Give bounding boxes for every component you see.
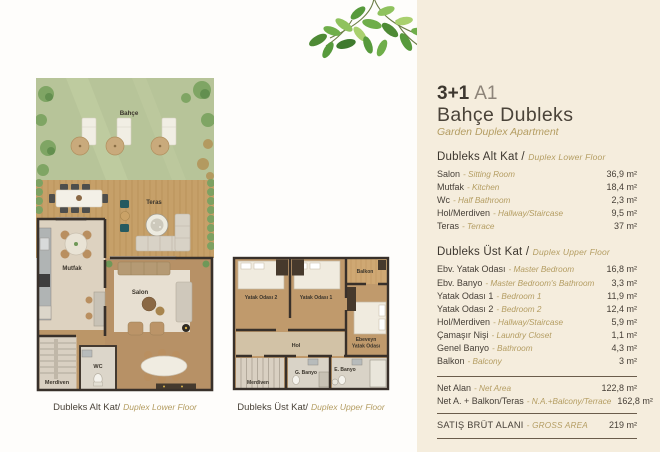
room-area: 37 m² <box>614 220 637 232</box>
room-area: 36,9 m² <box>606 168 637 180</box>
divider <box>437 438 637 439</box>
apartment-name-tr: Bahçe Dubleks <box>437 105 637 126</box>
kitchen-label: Mutfak <box>62 266 82 272</box>
ebath-label: E. Banyo <box>334 367 355 373</box>
room-area: 12,4 m² <box>606 303 637 315</box>
upper-floor-section: Dubleks Üst Kat / Duplex Upper Floor Ebv… <box>437 246 637 368</box>
room-name: Ebv. Banyo <box>437 278 482 288</box>
heading-en: Duplex Lower Floor <box>528 152 605 162</box>
room-name: Wc <box>437 195 450 205</box>
bedroom1-label: Yatak Odası 1 <box>300 295 333 301</box>
area-row: Ebv. Banyo- Master Bedroom's Bathroom3,3… <box>437 277 637 290</box>
room-name-en: - Master Bedroom <box>509 265 575 274</box>
apartment-name-en: Garden Duplex Apartment <box>437 126 637 138</box>
caption-en: Duplex Upper Floor <box>311 402 385 412</box>
room-name: Balkon <box>437 356 465 366</box>
garden-label: Bahçe <box>120 110 139 117</box>
room-name-en: - Terrace <box>462 222 494 231</box>
variant-label: A1 <box>474 83 497 104</box>
hall-label: Hol <box>292 343 301 349</box>
divider <box>437 413 637 414</box>
area-row: Hol/Merdiven- Hallway/Staircase9,5 m² <box>437 207 637 220</box>
room-name-en: - Hallway/Staircase <box>493 209 563 218</box>
lower-floor-plan: Bahçe <box>36 78 214 397</box>
gross-area-row: SATIŞ BRÜT ALANI- GROSS AREA219 m² <box>437 419 637 432</box>
apartment-type-title: 3+1A1 <box>437 84 637 104</box>
room-area: 11,9 m² <box>607 290 637 302</box>
garden-area: Bahçe <box>36 78 214 180</box>
info-panel: 3+1A1 Bahçe Dubleks Garden Duplex Apartm… <box>417 0 660 452</box>
room-area: 9,5 m² <box>611 207 637 219</box>
room-name: Hol/Merdiven <box>437 317 490 327</box>
area-row: Yatak Odası 2- Bedroom 212,4 m² <box>437 303 637 316</box>
room-name: Hol/Merdiven <box>437 208 490 218</box>
room-name-en: - Bedroom 2 <box>496 305 541 314</box>
room-area: 18,4 m² <box>606 181 637 193</box>
total-value: 162,8 m² <box>617 395 653 407</box>
room-area: 16,8 m² <box>606 263 637 275</box>
room-name: Teras <box>437 221 459 231</box>
area-row: Hol/Merdiven- Hallway/Staircase5,9 m² <box>437 316 637 329</box>
room-name-en: - Master Bedroom's Bathroom <box>485 279 594 288</box>
total-label: Net A. + Balkon/Teras <box>437 396 524 406</box>
gross-label: SATIŞ BRÜT ALANI <box>437 420 524 430</box>
area-row: Genel Banyo- Bathroom4,3 m² <box>437 342 637 355</box>
upper-floor-plan: Yatak Odası 2 Yatak Odası 1 Balkon Ebeve… <box>232 252 390 397</box>
upper-plan-caption: Dubleks Üst Kat/Duplex Upper Floor <box>222 402 400 413</box>
room-name-en: - Laundry Closet <box>492 331 552 340</box>
room-area: 5,9 m² <box>611 316 637 328</box>
room-name: Genel Banyo <box>437 343 489 353</box>
net-area-row: Net Alan- Net Area122,8 m² <box>437 382 637 395</box>
area-row: Mutfak- Kitchen18,4 m² <box>437 181 637 194</box>
master-label-1: Ebeveyn <box>356 337 377 343</box>
lower-plan-caption: Dubleks Alt Kat/Duplex Lower Floor <box>36 402 214 413</box>
room-area: 1,1 m² <box>611 329 637 341</box>
bistro-set <box>120 200 130 232</box>
totals-section: Net Alan- Net Area122,8 m² Net A. + Balk… <box>437 376 637 438</box>
type-label: 3+1 <box>437 83 469 104</box>
area-row: Teras- Terrace37 m² <box>437 220 637 233</box>
room-name-en: - Bedroom 1 <box>496 292 541 301</box>
gross-value: 219 m² <box>609 419 637 431</box>
total-label: Net Alan <box>437 383 471 393</box>
gross-label-en: - GROSS AREA <box>527 421 588 430</box>
area-row: Wc- Half Bathroom2,3 m² <box>437 194 637 207</box>
balcony-label: Balkon <box>357 269 374 275</box>
lower-floor-section: Dubleks Alt Kat / Duplex Lower Floor Sal… <box>437 151 637 233</box>
room-name: Salon <box>437 169 460 179</box>
room-name-en: - Kitchen <box>467 183 499 192</box>
area-row: Salon- Sitting Room36,9 m² <box>437 168 637 181</box>
lower-floor-heading: Dubleks Alt Kat / Duplex Lower Floor <box>437 151 637 163</box>
wc-label: WC <box>93 364 102 370</box>
master-label-2: Yatak Odası <box>352 344 381 350</box>
room-name: Yatak Odası 1 <box>437 291 493 301</box>
caption-en: Duplex Lower Floor <box>123 402 197 412</box>
room-area: 3 m² <box>619 355 637 367</box>
divider <box>437 376 637 377</box>
heading-tr: Dubleks Alt Kat / <box>437 151 525 163</box>
upper-floor-heading: Dubleks Üst Kat / Duplex Upper Floor <box>437 246 637 258</box>
total-label-en: - Net Area <box>474 384 511 393</box>
caption-tr: Dubleks Üst Kat/ <box>237 402 308 413</box>
total-label-en: - N.A.+Balcony/Terrace <box>527 397 612 406</box>
area-row: Yatak Odası 1- Bedroom 111,9 m² <box>437 290 637 303</box>
area-row: Çamaşır Nişi- Laundry Closet1,1 m² <box>437 329 637 342</box>
upper-stairs-label: Merdiven <box>247 380 269 386</box>
gbath-label: G. Banyo <box>295 370 317 376</box>
terrace-label: Teras <box>146 200 162 206</box>
room-name: Ebv. Yatak Odası <box>437 264 506 274</box>
room-name-en: - Half Bathroom <box>453 196 510 205</box>
stairs-label: Merdiven <box>45 380 70 386</box>
area-row: Balkon- Balcony3 m² <box>437 355 637 368</box>
heading-en: Duplex Upper Floor <box>533 247 610 257</box>
room-name: Çamaşır Nişi <box>437 330 489 340</box>
salon-label: Salon <box>132 290 149 296</box>
room-area: 4,3 m² <box>611 342 637 354</box>
room-name-en: - Hallway/Staircase <box>493 318 563 327</box>
room-name-en: - Bathroom <box>492 344 533 353</box>
room-name: Yatak Odası 2 <box>437 304 493 314</box>
room-name-en: - Sitting Room <box>463 170 515 179</box>
bedroom2-label: Yatak Odası 2 <box>245 295 278 301</box>
room-area: 2,3 m² <box>611 194 637 206</box>
area-row: Ebv. Yatak Odası- Master Bedroom16,8 m² <box>437 263 637 276</box>
hot-tub-icon <box>146 214 168 236</box>
heading-tr: Dubleks Üst Kat / <box>437 246 529 258</box>
room-name: Mutfak <box>437 182 464 192</box>
net-plus-row: Net A. + Balkon/Teras- N.A.+Balcony/Terr… <box>437 395 637 408</box>
caption-tr: Dubleks Alt Kat/ <box>53 402 120 413</box>
room-name-en: - Balcony <box>468 357 502 366</box>
room-area: 3,3 m² <box>611 277 637 289</box>
total-value: 122,8 m² <box>601 382 637 394</box>
